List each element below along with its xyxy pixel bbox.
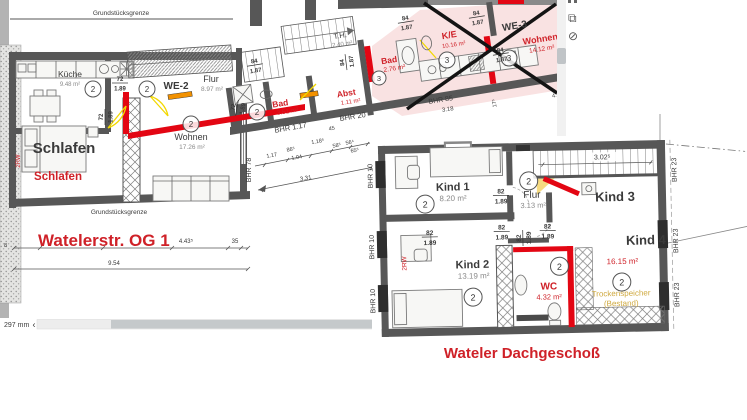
room-label-flur2: Flur — [523, 190, 541, 201]
room-label-kind1: Kind 1 — [436, 181, 470, 194]
room-area-kueche: 9.48 m² — [60, 82, 80, 88]
room-area-abst: 1.11 m² — [340, 98, 361, 107]
room-label-kind2: Kind 2 — [455, 259, 489, 272]
kueche-table — [30, 90, 60, 122]
room-area-kind1: 8.20 m² — [439, 194, 467, 204]
room-label-kueche: Küche — [58, 69, 82, 79]
dim-label: 9.54 — [108, 261, 120, 267]
dim-label: 56⁴ — [345, 138, 355, 146]
dim-label: 17⁵ — [491, 99, 499, 108]
dim-label: 3.18 — [442, 106, 455, 114]
room-area-wohnen: 17.26 m² — [179, 144, 205, 151]
dim-label: BHR 10 — [367, 164, 375, 189]
room-label-wc: WC — [540, 281, 557, 292]
svg-text:1.89: 1.89 — [114, 87, 126, 93]
dim-label: BHR 10 — [370, 289, 378, 314]
dim-baselines — [14, 248, 248, 269]
room-label-abst: Abst — [336, 87, 356, 100]
dim-label: 86⁵ — [286, 145, 295, 153]
dim-label: 3.31 — [300, 175, 313, 183]
unit-number: 2 — [255, 108, 260, 117]
dim-label: 8 — [4, 243, 7, 249]
room-label-kind4: Kind 4 — [626, 232, 667, 248]
room-label-schlafen: Schlafen — [33, 140, 96, 157]
svg-text:72: 72 — [99, 113, 105, 120]
flat-label-we2: WE-2 — [164, 81, 189, 92]
dim-label: 65⁵ — [350, 146, 359, 154]
unit-number: 2 — [189, 120, 194, 129]
boundary-label-top: Grundstücksgrenze — [93, 10, 150, 17]
dim-label: 4.43⁵ — [179, 238, 194, 245]
room-area-wc: 4.32 m² — [536, 292, 562, 302]
wohnen-sofa — [153, 176, 229, 201]
svg-text:82: 82 — [497, 188, 505, 195]
dim-label: BHR 78 — [246, 158, 253, 183]
svg-text:1.89: 1.89 — [526, 231, 533, 244]
speicher-label-2: (Bestand) — [604, 299, 639, 309]
vscroll-thumb[interactable] — [557, 48, 566, 64]
drawing-canvas: Grundstücksgrenze — [0, 0, 747, 420]
unit-number: 2 — [526, 176, 531, 186]
unit-number: 2 — [145, 85, 150, 94]
dim-label: 45 — [328, 126, 335, 133]
rw-annotation: 2RW — [16, 154, 22, 168]
status-circle-icon[interactable]: ⊘ — [568, 30, 578, 42]
svg-text:1.89: 1.89 — [495, 234, 508, 241]
svg-text:1.89: 1.89 — [424, 240, 437, 247]
speicher-label-1: Trockenspeicher — [592, 288, 651, 298]
svg-text:82: 82 — [516, 234, 523, 242]
dim-fraction: 84 1.87 — [339, 53, 356, 71]
room-label-wohnen: Wohnen — [174, 132, 207, 142]
dim-label: BHR 10 — [369, 235, 377, 260]
stair-th-lower — [241, 47, 285, 82]
dim-label: BHR 23 — [674, 282, 682, 307]
copy-icon[interactable]: ⧉ — [568, 12, 577, 24]
paper-size-label: 297 mm — [4, 322, 29, 329]
svg-text:72: 72 — [117, 77, 124, 83]
svg-text:82: 82 — [498, 224, 506, 231]
plan2-title: Wateler Dachgeschoß — [444, 345, 600, 362]
dim-label: 1.18⁵ — [311, 137, 325, 146]
floorplan-document: { "window": { "scroll_label": "297 mm", … — [0, 0, 747, 420]
room-area-speicher: 16.15 m² — [607, 257, 639, 267]
svg-text:82: 82 — [426, 230, 434, 237]
cropped-icon[interactable] — [568, 0, 578, 3]
dim-label: BHR 23 — [671, 157, 679, 182]
room-label-flur: Flur — [203, 74, 219, 84]
stair-plan2: 3.02⁵ — [533, 148, 658, 179]
hscroll-left-arrow[interactable]: ‹ — [33, 320, 36, 330]
unit-number: 2 — [423, 200, 428, 210]
svg-text:1.89: 1.89 — [109, 111, 115, 123]
unit-number: 2 — [619, 277, 624, 287]
dim-label: 58⁵ — [332, 141, 341, 149]
chimney-shaft-2 — [496, 245, 514, 327]
unit-number: 2 — [557, 262, 562, 272]
room-area-flur2: 3.13 m² — [520, 201, 546, 211]
boundary-label-bottom: Grundstücksgrenze — [91, 209, 148, 216]
room-area-flur: 8.97 m² — [201, 86, 224, 93]
dim-fraction: 72 1.89 — [112, 77, 128, 93]
svg-text:82: 82 — [544, 223, 552, 230]
dim-label: 1.17 — [266, 152, 278, 160]
unit-number: 3 — [377, 74, 381, 83]
unit-number: 3 — [445, 56, 450, 65]
dim-label: 1.04 — [291, 154, 303, 162]
rw-annotation: 2RW — [401, 255, 408, 270]
unit-number: 2 — [91, 85, 96, 94]
unit-number: 2 — [470, 293, 475, 303]
room-area-kind2: 13.19 m² — [458, 271, 490, 281]
dim-label: 35 — [232, 239, 239, 245]
svg-text:1.89: 1.89 — [495, 198, 508, 205]
dim-label: 3.02⁵ — [594, 154, 611, 161]
room-label-kind3: Kind 3 — [595, 189, 635, 205]
svg-text:1.89: 1.89 — [541, 233, 554, 240]
svg-text:1.87: 1.87 — [349, 55, 356, 68]
room-label-th: T.H. — [333, 30, 347, 41]
room-label-schlafen-red: Schlafen — [34, 171, 82, 183]
